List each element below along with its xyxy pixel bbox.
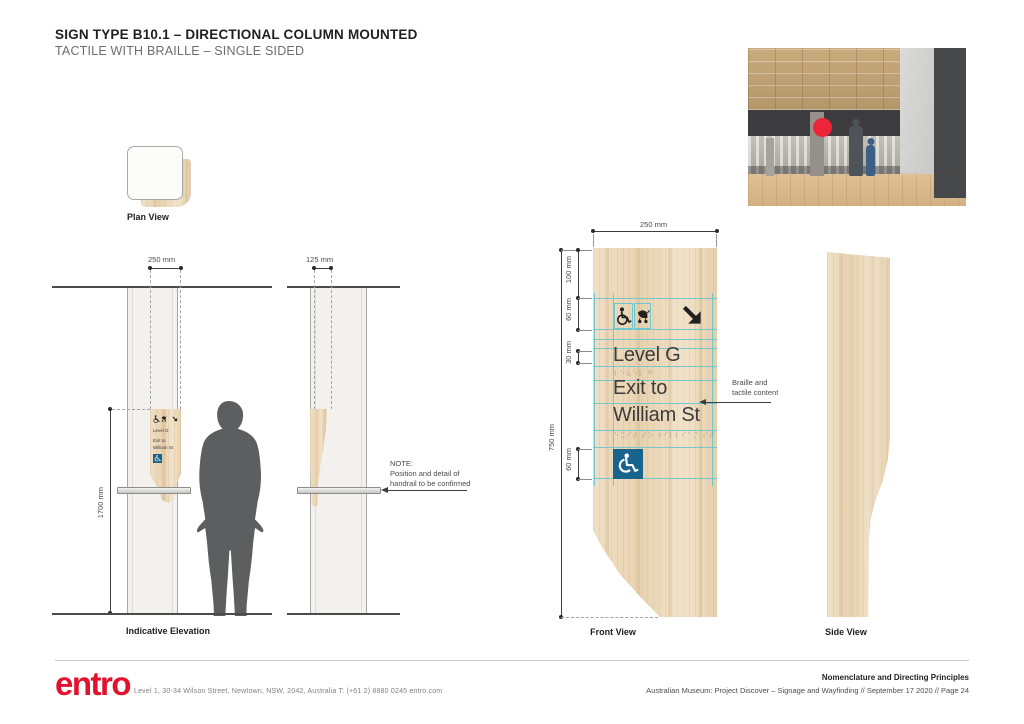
- dim-label-750: 750 mm: [547, 424, 556, 451]
- document-page: SIGN TYPE B10.1 – DIRECTIONAL COLUMN MOU…: [0, 0, 1024, 724]
- hidden-sign-edge: [180, 270, 181, 409]
- sign-location-red-dot: [813, 118, 832, 137]
- guide-line: [593, 478, 717, 479]
- extension-line: [716, 234, 717, 247]
- mini-sign-line1: Level G: [153, 428, 169, 433]
- plan-view-label: Plan View: [127, 212, 169, 222]
- front-view-label: Front View: [573, 627, 653, 637]
- left-column: [766, 138, 774, 176]
- braille-row: ⠑⠭⠊⠞ ⠞⠕ ⠺⠊⠇⠇⠊⠁⠍ ⠎⠞: [614, 432, 715, 440]
- dim-dot: [329, 266, 333, 270]
- dim-label-250: 250 mm: [148, 255, 175, 264]
- extension-tick: [578, 479, 592, 480]
- pram-icon-box: [634, 303, 651, 329]
- dim-label-250-front: 250 mm: [640, 220, 667, 229]
- callout-line: tactile content: [732, 388, 778, 398]
- floor-line: [52, 613, 272, 615]
- location-render-photo: [748, 48, 966, 206]
- note-line: handrail to be confirmed: [390, 479, 470, 489]
- dim-dot: [148, 266, 152, 270]
- hidden-sign-edge: [331, 270, 332, 409]
- guide-line: [593, 298, 717, 299]
- note-line: NOTE:: [390, 459, 470, 469]
- guide-line: [593, 447, 717, 448]
- pram-icon: [636, 308, 650, 325]
- sign-line1: Level G: [613, 344, 681, 367]
- guide-line: [593, 339, 717, 340]
- dim-dot: [108, 407, 112, 411]
- extension-tick: [578, 449, 592, 450]
- guide-line-vertical: [712, 293, 713, 486]
- dim-line-1700: [110, 409, 111, 613]
- dim-label-100: 100 mm: [564, 256, 573, 283]
- note-leader-line: [388, 490, 467, 491]
- guide-line: [593, 329, 717, 330]
- arrow-down-right-icon: [681, 304, 704, 327]
- extension-tick: [578, 298, 592, 299]
- side-view-sign-panel: [827, 252, 890, 617]
- floor-line: [287, 613, 400, 615]
- page-title: SIGN TYPE B10.1 – DIRECTIONAL COLUMN MOU…: [55, 27, 418, 42]
- document-title: Nomenclature and Directing Principles: [822, 673, 969, 682]
- handrail: [297, 487, 381, 494]
- dim-chain: [578, 449, 579, 479]
- dim-label-60: 60 mm: [564, 298, 573, 321]
- extension-line: [112, 409, 150, 410]
- mini-sign-line2: Exit to: [153, 438, 166, 443]
- front-view-sign-panel: Level G ⠇⠑⠧⠑⠇ ⠛ Exit to William St ⠑⠭⠊⠞ …: [593, 248, 717, 617]
- page-subtitle: TACTILE WITH BRAILLE – SINGLE SIDED: [55, 44, 304, 58]
- extension-tick: [578, 351, 592, 352]
- dim-label-1700: 1700 mm: [96, 487, 105, 518]
- dim-dot: [591, 229, 595, 233]
- wheelchair-icon: [616, 306, 632, 326]
- guide-line: [593, 430, 717, 431]
- pram-icon: [161, 415, 167, 423]
- dim-label-125: 125 mm: [306, 255, 333, 264]
- hidden-sign-edge: [150, 270, 151, 409]
- access-wheelchair-icon: [617, 453, 639, 475]
- mini-sign-line3: William St: [153, 445, 173, 450]
- child-figure: [866, 145, 875, 176]
- access-symbol-tile: [613, 449, 643, 479]
- dim-line-250-front: [593, 231, 717, 232]
- adult-figure: [849, 126, 863, 176]
- document-info: Australian Museum: Project Discover – Si…: [646, 686, 969, 695]
- dim-label-60b: 60 mm: [564, 448, 573, 471]
- note-line: Position and detail of: [390, 469, 470, 479]
- dim-dot: [179, 266, 183, 270]
- handrail: [117, 487, 191, 494]
- indicative-elevation-label: Indicative Elevation: [118, 626, 218, 636]
- dim-dot: [576, 248, 580, 252]
- extension-line: [561, 617, 658, 618]
- footer-rule: [55, 660, 969, 661]
- dim-line-250: [150, 268, 181, 269]
- side-view-label: Side View: [806, 627, 886, 637]
- hidden-sign-edge: [314, 270, 315, 409]
- wheelchair-icon-box: [614, 303, 633, 329]
- dim-dot: [312, 266, 316, 270]
- extension-tick: [578, 330, 592, 331]
- callout-leader-arrow: [699, 399, 706, 405]
- arrow-down-right-icon: [172, 416, 178, 422]
- callout-leader-line: [705, 402, 771, 403]
- human-silhouette: [188, 399, 270, 618]
- guide-line-vertical: [594, 293, 595, 486]
- extension-tick: [578, 363, 592, 364]
- dim-label-30: 30 mm: [564, 341, 573, 364]
- entro-logo: entro: [55, 665, 130, 703]
- callout-line: Braille and: [732, 378, 778, 388]
- note-leader-arrow: [381, 487, 388, 493]
- footer-address: Level 1, 30-34 Wilson Street, Newtown, N…: [134, 688, 442, 695]
- mini-access-symbol: [153, 454, 162, 463]
- stone-wall: [748, 48, 900, 110]
- dim-line-750: [561, 250, 562, 617]
- plan-view-column: [127, 146, 183, 200]
- dim-chain: [578, 250, 579, 330]
- dim-dot: [715, 229, 719, 233]
- handrail-note: NOTE: Position and detail of handrail to…: [390, 459, 470, 489]
- right-wall-panel: [900, 48, 934, 172]
- extension-line: [593, 234, 594, 247]
- sign-line2: Exit to: [613, 377, 667, 400]
- braille-callout: Braille and tactile content: [732, 378, 778, 398]
- right-dark-column: [934, 48, 966, 198]
- sign-line3: William St: [613, 404, 700, 427]
- wheelchair-icon: [153, 415, 160, 423]
